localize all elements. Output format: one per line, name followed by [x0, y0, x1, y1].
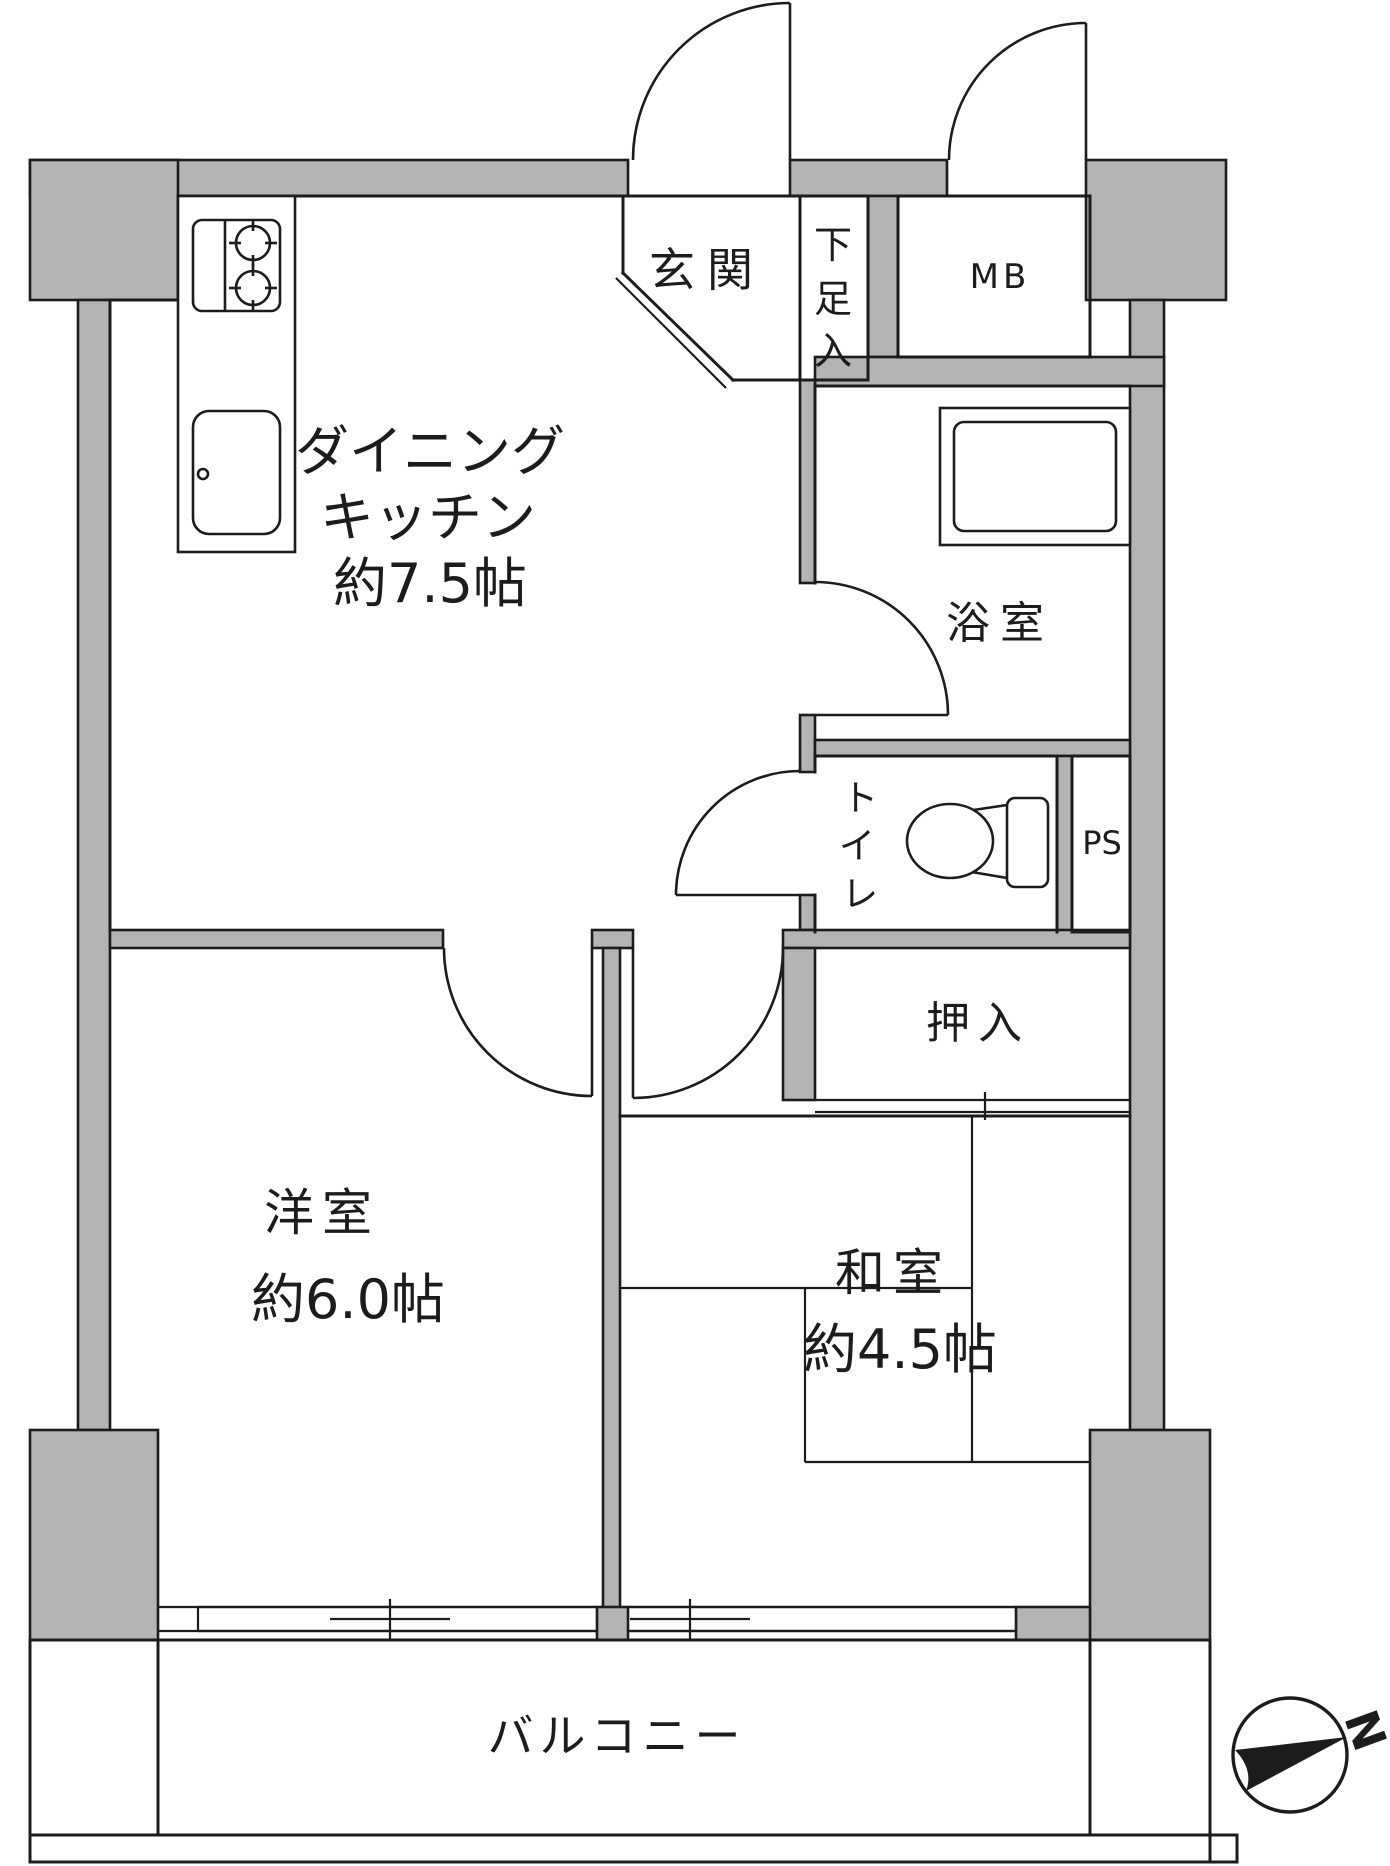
- kitchen-unit: [178, 196, 295, 552]
- toilet-icon: [907, 798, 1048, 887]
- entrance-door-swing-arc: [633, 3, 790, 160]
- toilet-label: ト イ レ: [839, 778, 878, 915]
- wall-right-band: [1130, 300, 1164, 1430]
- western-room-door-swing-arc: [444, 948, 592, 1096]
- wall-main-horizontal-b: [592, 930, 633, 948]
- japanese-room-window: [628, 1599, 1016, 1639]
- svg-text:イ: イ: [839, 826, 875, 867]
- wall-western-japanese-divider: [603, 948, 620, 1631]
- svg-text:ト: ト: [842, 778, 878, 819]
- wall-toilet-ps-divider: [1057, 756, 1072, 932]
- windows: [158, 1599, 1016, 1639]
- bathroom-label: 浴室: [946, 598, 1054, 649]
- wall-window-stub-center: [597, 1607, 628, 1640]
- bathtub-icon: [940, 408, 1130, 545]
- closet-label: 押入: [926, 998, 1030, 1049]
- japanese-room-label: 和室: [835, 1244, 951, 1302]
- japanese-room-door-swing-arc: [633, 948, 783, 1098]
- pillar-bottom-right: [1090, 1430, 1210, 1640]
- western-room-window: [198, 1599, 597, 1639]
- wall-mb-west: [868, 196, 898, 357]
- wall-dk-east-upper: [800, 380, 815, 583]
- meter-box-label: MB: [970, 257, 1031, 297]
- pillar-top-left: [30, 160, 178, 300]
- shoe-storage-label: 下 足 入: [814, 223, 852, 373]
- compass: N: [1233, 1698, 1390, 1812]
- meter-box-door-swing-arc: [949, 23, 1086, 160]
- sink-icon: [193, 411, 280, 534]
- svg-text:入: 入: [814, 329, 852, 373]
- dining-kitchen-label-line2: キッチン: [320, 486, 536, 549]
- pipe-space-label: PS: [1082, 824, 1122, 862]
- wall-dk-east-lower: [800, 895, 815, 930]
- floor-plan-page: N ダイニング キッチン 約7.5帖 玄関 下 足 入 MB 浴室 ト イ レ …: [0, 0, 1390, 1866]
- dining-kitchen-size-label: 約7.5帖: [333, 552, 527, 615]
- dining-kitchen-label-line1: ダイニング: [295, 420, 565, 483]
- toilet-door-swing-arc: [676, 771, 800, 895]
- western-room-label: 洋室: [264, 1184, 380, 1242]
- bath-door-swing-arc: [815, 582, 948, 715]
- wall-dk-east-mid: [800, 715, 815, 772]
- wall-window-stub-right: [1016, 1607, 1090, 1640]
- pillar-top-right: [1086, 160, 1226, 300]
- svg-text:レ: レ: [842, 874, 878, 915]
- entrance-label: 玄関: [649, 243, 765, 297]
- svg-text:足: 足: [814, 277, 852, 321]
- pillar-bottom-left: [30, 1430, 158, 1640]
- wall-hall-east: [783, 948, 815, 1100]
- wall-left-band: [78, 300, 110, 1430]
- wall-main-horizontal-a: [110, 930, 443, 948]
- svg-text:下: 下: [814, 223, 852, 267]
- wall-bath-south: [815, 740, 1130, 756]
- balcony-label: バルコニー: [487, 1709, 746, 1763]
- floor-plan-drawing: N ダイニング キッチン 約7.5帖 玄関 下 足 入 MB 浴室 ト イ レ …: [0, 0, 1390, 1866]
- wall-top-mid-segment: [790, 160, 947, 196]
- western-room-size-label: 約6.0帖: [251, 1268, 445, 1331]
- japanese-room-size-label: 約4.5帖: [803, 1318, 997, 1381]
